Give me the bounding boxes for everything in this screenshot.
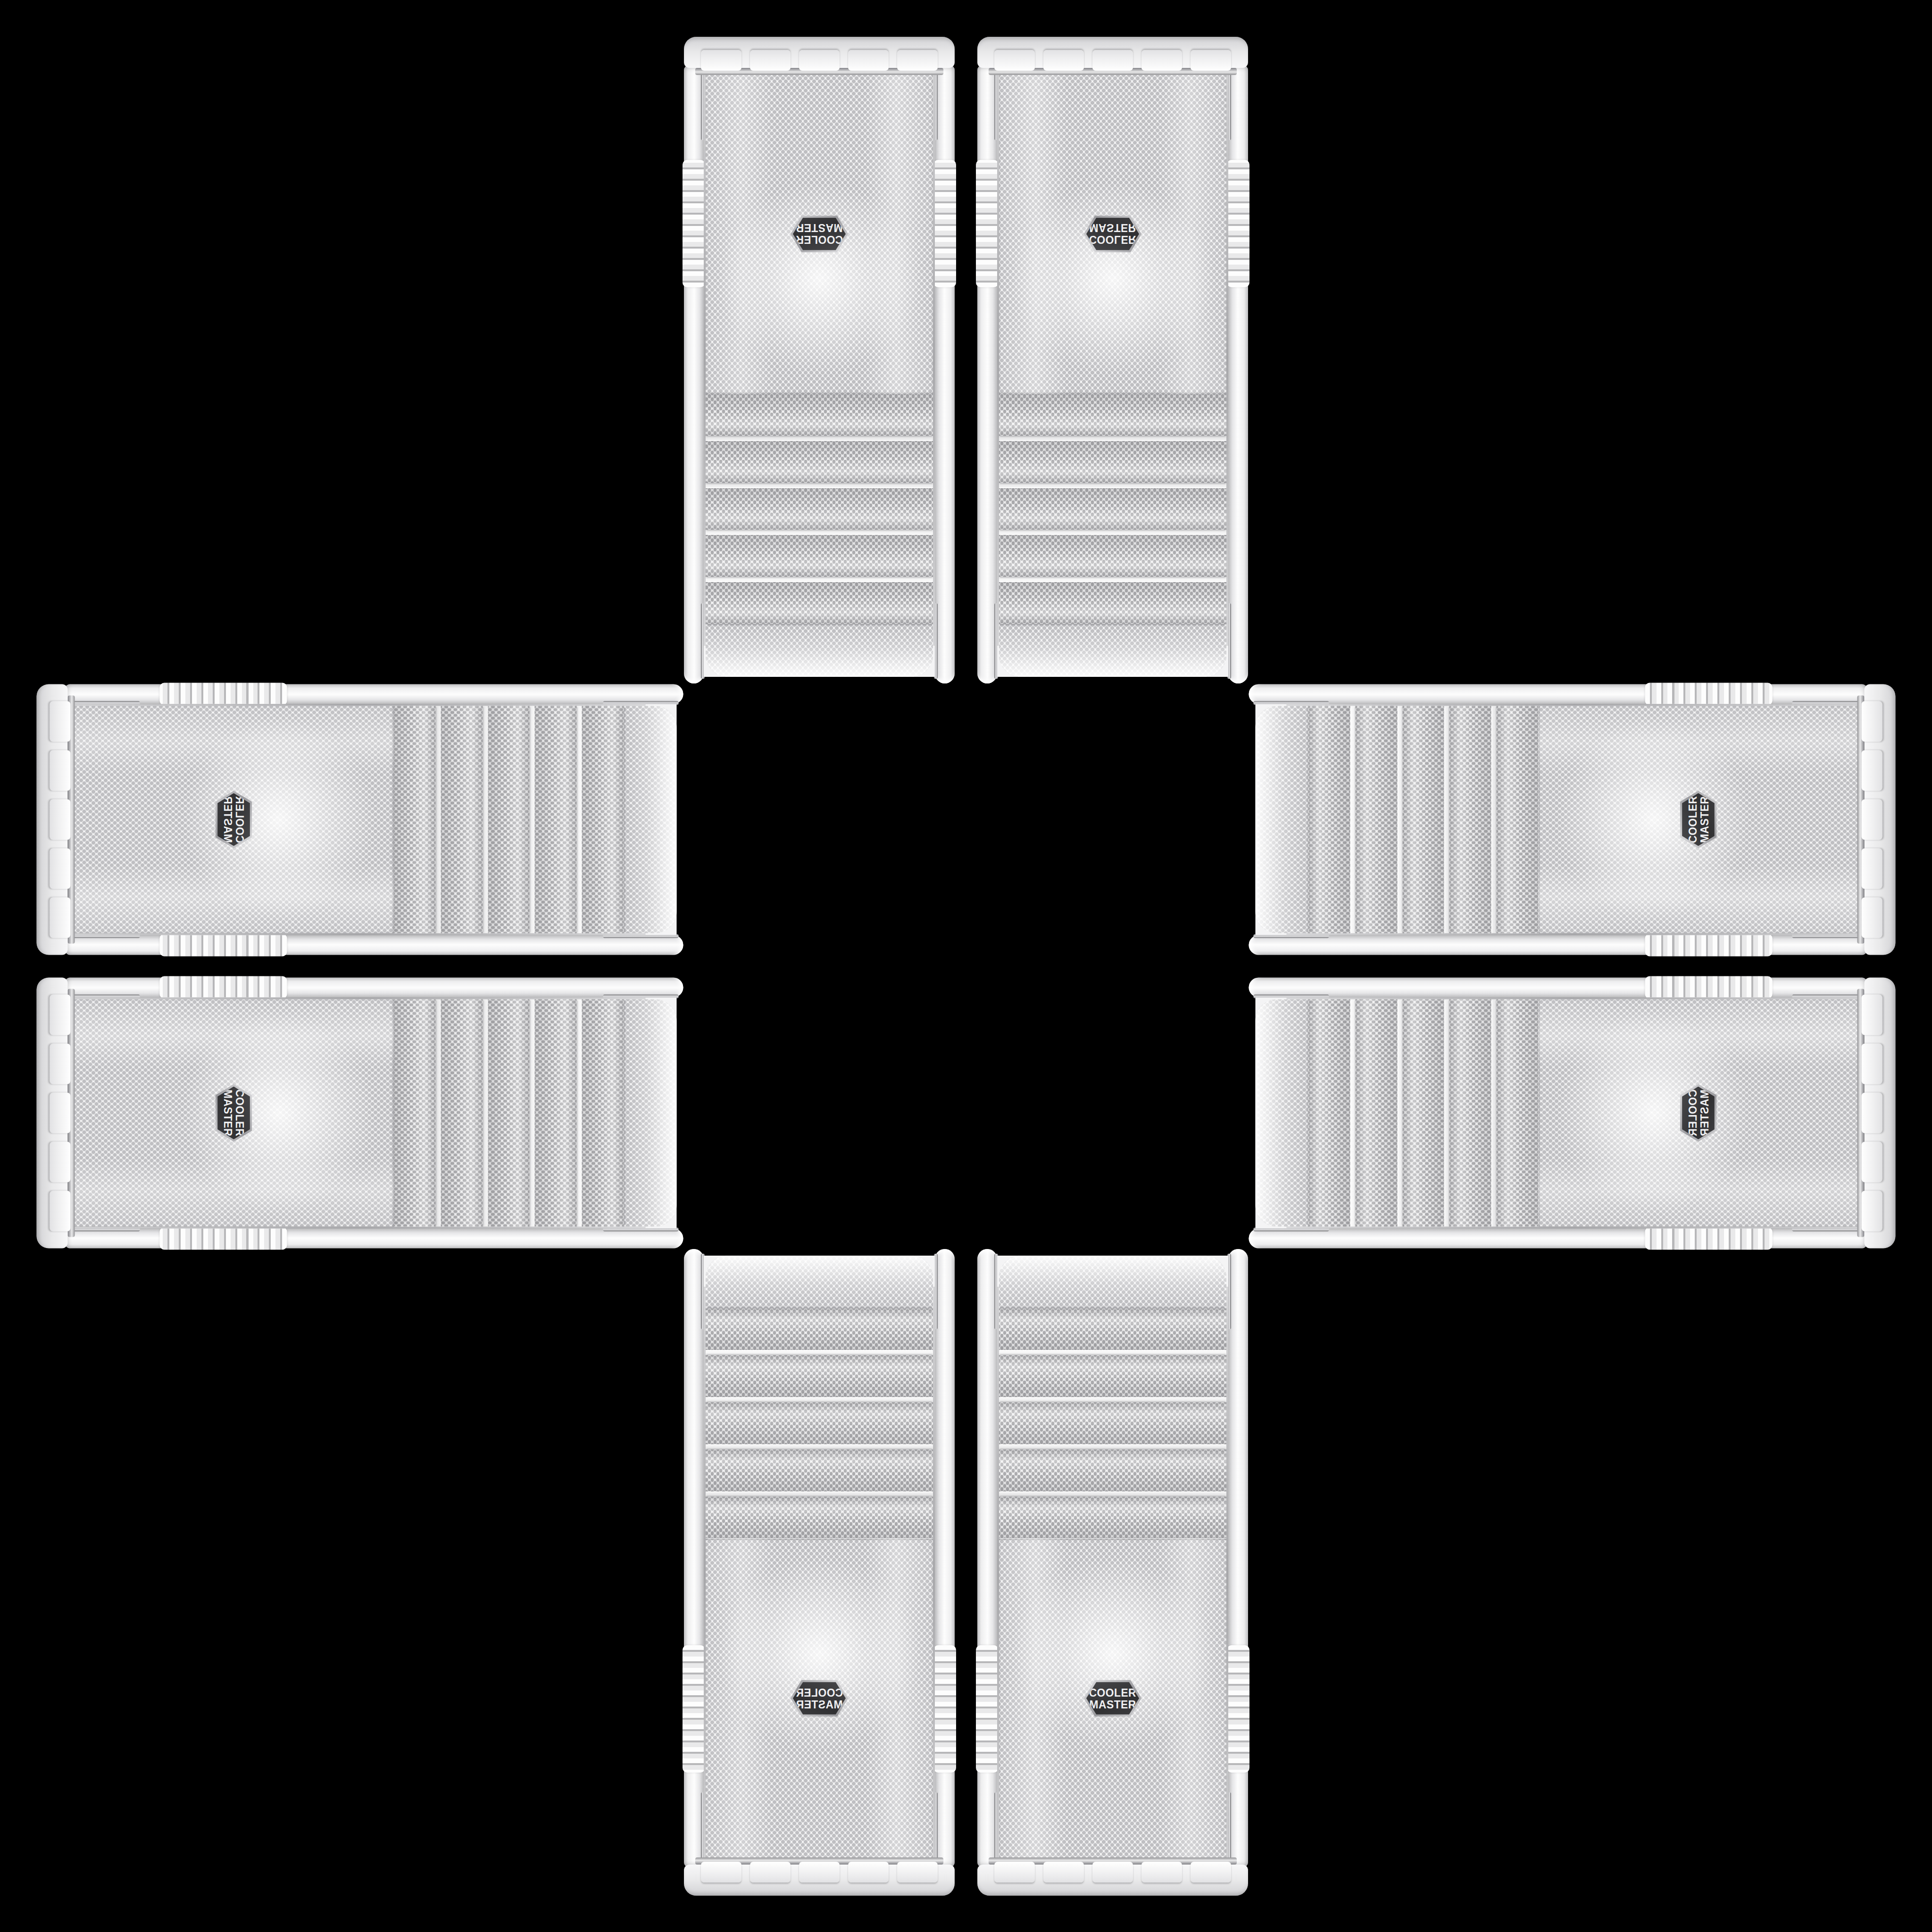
side-rail-right [1228, 1249, 1248, 1867]
badge-text-line1: COOLER [1687, 796, 1699, 843]
bottom-cap [1865, 977, 1896, 1248]
rail-grip-ribs [1645, 933, 1773, 956]
badge-face: COOLER MASTER [1086, 216, 1139, 252]
badge-face: COOLER MASTER [216, 1086, 252, 1139]
cap-segment [994, 50, 1035, 71]
drive-bay-group [394, 706, 624, 933]
cap-segment [1092, 1862, 1133, 1882]
drive-bay-group [394, 999, 624, 1226]
rail-grip-ribs [933, 1645, 956, 1773]
side-rail-left [1249, 977, 1867, 997]
rail-grip-ribs [160, 683, 287, 705]
bay-shading [999, 488, 1226, 530]
mesh-shoulder [1256, 999, 1308, 1226]
case-top-left-vertical: COOLER MASTER [684, 37, 955, 686]
mesh-panel: COOLER MASTER [74, 706, 394, 933]
badge-text-line1: COOLER [234, 796, 246, 843]
drive-bay-cover [706, 1308, 933, 1350]
cap-segment [50, 994, 71, 1035]
drive-bay-cover [488, 999, 530, 1226]
bay-shading [582, 706, 624, 933]
mesh-shoulder [999, 1256, 1226, 1308]
front-panel: COOLER MASTER [704, 1256, 935, 1858]
bay-shading [1497, 999, 1539, 1226]
rail-grip-ribs [1227, 1645, 1249, 1773]
side-rail-right [1249, 1228, 1867, 1248]
drive-bay-cover [1402, 999, 1444, 1226]
drive-bay-cover [706, 1497, 933, 1539]
bay-shading [1308, 999, 1350, 1226]
rail-grip-ribs [160, 933, 287, 956]
cap-segment [1862, 701, 1882, 741]
side-rail-left [977, 1249, 997, 1867]
badge-text-line1: COOLER [1089, 234, 1136, 246]
bay-shading [1497, 706, 1539, 933]
drive-bay-cover [582, 706, 624, 933]
bay-shading [999, 1402, 1226, 1444]
bottom-cap [977, 1865, 1248, 1896]
bay-shading [1355, 999, 1397, 1226]
rail-grip-ribs [933, 160, 956, 287]
cap-segment [750, 50, 791, 71]
bay-shading [582, 999, 624, 1226]
cap-segment-row [701, 1862, 938, 1882]
rail-grip-ribs [1645, 976, 1773, 999]
bay-shading [535, 706, 577, 933]
badge-text-line2: MASTER [222, 796, 234, 842]
badge-text-line1: COOLER [796, 234, 843, 246]
bay-shading [1308, 706, 1350, 933]
mesh-shoulder [1256, 706, 1308, 933]
drive-bay-cover [535, 706, 577, 933]
badge-face: COOLER MASTER [1680, 1086, 1717, 1139]
bottom-cap [37, 684, 68, 955]
drive-bay-cover [394, 999, 436, 1226]
cap-segment [1862, 848, 1882, 889]
bottom-cap [1865, 684, 1896, 955]
cap-segment [50, 799, 71, 840]
side-rail-right [684, 66, 704, 683]
bay-shading [394, 999, 436, 1226]
badge-face: COOLER MASTER [1680, 793, 1717, 846]
drive-bay-group [1308, 706, 1539, 933]
mesh-panel: COOLER MASTER [706, 74, 933, 394]
badge-text-line2: MASTER [1699, 796, 1710, 842]
cap-segment [1862, 1191, 1882, 1231]
badge-text-line1: COOLER [1089, 1687, 1136, 1699]
bay-shading [706, 394, 933, 436]
drive-bay-cover [441, 999, 483, 1226]
rail-grip-ribs [160, 1227, 287, 1249]
cap-segment [50, 701, 71, 741]
cap-segment [1141, 50, 1182, 71]
highlight-sheen [1256, 999, 1308, 1226]
badge-text-line2: MASTER [222, 1089, 234, 1136]
front-panel: COOLER MASTER [704, 74, 935, 677]
badge-text-line2: MASTER [1089, 1699, 1136, 1710]
bay-shading [706, 441, 933, 483]
bay-shading [706, 1355, 933, 1397]
drive-bay-cover [706, 441, 933, 483]
cap-segment [897, 50, 938, 71]
drive-bay-cover [999, 582, 1226, 624]
rail-grip-ribs [1227, 160, 1249, 287]
drive-bay-cover [1449, 706, 1491, 933]
cap-segment-row [994, 1862, 1231, 1882]
mesh-shoulder [624, 999, 677, 1226]
drive-bay-cover [999, 394, 1226, 436]
drive-bay-group [999, 394, 1226, 624]
drive-bay-cover [999, 1449, 1226, 1491]
highlight-sheen [1256, 706, 1308, 933]
bottom-cap [684, 1865, 955, 1896]
drive-bay-cover [488, 706, 530, 933]
collage-canvas: COOLER MASTER [0, 0, 1932, 1932]
bay-shading [999, 441, 1226, 483]
bay-shading [441, 999, 483, 1226]
case-right-bottom-horizontal: COOLER MASTER [1246, 977, 1896, 1248]
drive-bay-cover [1355, 999, 1397, 1226]
bay-shading [999, 394, 1226, 436]
rail-grip-ribs [683, 160, 705, 287]
bay-shading [999, 1308, 1226, 1350]
bay-shading [706, 1308, 933, 1350]
rail-grip-ribs [976, 160, 999, 287]
mesh-panel: COOLER MASTER [74, 999, 394, 1226]
cap-segment-row [701, 50, 938, 71]
bay-shading [706, 488, 933, 530]
mesh-shoulder [706, 1256, 933, 1308]
cap-segment [799, 1862, 840, 1882]
front-panel: COOLER MASTER [1256, 997, 1858, 1228]
badge-text-line2: MASTER [1089, 222, 1136, 234]
cap-segment-row [994, 50, 1231, 71]
bay-shading [441, 706, 483, 933]
cap-segment [50, 1092, 71, 1133]
side-rail-left [935, 1249, 955, 1867]
front-panel: COOLER MASTER [997, 74, 1228, 677]
mesh-panel: COOLER MASTER [1539, 706, 1858, 933]
drive-bay-cover [999, 441, 1226, 483]
mesh-shoulder [624, 706, 677, 933]
side-rail-right [1249, 684, 1867, 704]
drive-bay-cover [999, 1355, 1226, 1397]
cap-segment [1043, 1862, 1084, 1882]
highlight-sheen [624, 706, 677, 933]
mesh-panel: COOLER MASTER [999, 1539, 1226, 1858]
drive-bay-cover [999, 488, 1226, 530]
drive-bay-cover [706, 1355, 933, 1397]
mesh-panel: COOLER MASTER [999, 74, 1226, 394]
cap-segment [1862, 750, 1882, 791]
side-rail-right [66, 684, 683, 704]
badge-text-line2: MASTER [796, 222, 842, 234]
bay-shading [535, 999, 577, 1226]
drive-bay-cover [1402, 706, 1444, 933]
drive-bay-cover [1449, 999, 1491, 1226]
bay-shading [706, 1449, 933, 1491]
mesh-panel: COOLER MASTER [1539, 999, 1858, 1226]
bay-shading [706, 1402, 933, 1444]
mesh-shoulder [999, 624, 1226, 677]
bay-shading [706, 582, 933, 624]
drive-bay-cover [535, 999, 577, 1226]
drive-bay-cover [1497, 999, 1539, 1226]
bay-shading [706, 535, 933, 577]
badge-text-line1: COOLER [796, 1687, 843, 1699]
highlight-sheen [624, 999, 677, 1226]
bay-shading [999, 1449, 1226, 1491]
side-rail-left [66, 977, 683, 997]
drive-bay-cover [706, 535, 933, 577]
drive-bay-cover [999, 1497, 1226, 1539]
cap-segment [1191, 50, 1231, 71]
cap-segment [1191, 1862, 1231, 1882]
rail-grip-ribs [1645, 683, 1773, 705]
front-panel: COOLER MASTER [74, 704, 677, 935]
rail-grip-ribs [976, 1645, 999, 1773]
drive-bay-cover [706, 1449, 933, 1491]
side-rail-right [1228, 66, 1248, 683]
drive-bay-cover [1308, 706, 1350, 933]
cap-segment [1043, 50, 1084, 71]
cap-segment [799, 50, 840, 71]
cap-segment [897, 1862, 938, 1882]
cap-segment [50, 848, 71, 889]
front-panel: COOLER MASTER [1256, 704, 1858, 935]
highlight-sheen [706, 624, 933, 677]
bay-shading [999, 1355, 1226, 1397]
cap-segment [50, 1191, 71, 1231]
bay-shading [999, 582, 1226, 624]
drive-bay-cover [1497, 706, 1539, 933]
drive-bay-group [999, 1308, 1226, 1539]
side-rail-left [66, 935, 683, 955]
drive-bay-cover [999, 535, 1226, 577]
bay-shading [1449, 999, 1491, 1226]
bay-shading [1449, 706, 1491, 933]
drive-bay-cover [441, 706, 483, 933]
cap-segment-row [50, 994, 71, 1231]
cap-segment [1862, 799, 1882, 840]
case-bottom-left-vertical: COOLER MASTER [684, 1246, 955, 1896]
cap-segment-row [1862, 701, 1882, 938]
drive-bay-cover [582, 999, 624, 1226]
drive-bay-cover [1355, 706, 1397, 933]
bottom-cap [37, 977, 68, 1248]
rail-grip-ribs [1645, 1227, 1773, 1249]
bay-shading [1355, 706, 1397, 933]
bay-shading [394, 706, 436, 933]
bay-shading [1402, 999, 1444, 1226]
drive-bay-group [706, 1308, 933, 1539]
drive-bay-cover [706, 582, 933, 624]
highlight-sheen [999, 624, 1226, 677]
badge-text-line2: MASTER [1699, 1089, 1710, 1136]
bay-shading [488, 706, 530, 933]
badge-face: COOLER MASTER [793, 1680, 846, 1717]
badge-text-line1: COOLER [1687, 1089, 1699, 1136]
drive-bay-cover [706, 1402, 933, 1444]
cap-segment [1092, 50, 1133, 71]
cap-segment [50, 1043, 71, 1084]
cap-segment [1862, 897, 1882, 938]
cap-segment [50, 750, 71, 791]
bay-shading [488, 999, 530, 1226]
case-top-right-vertical: COOLER MASTER [977, 37, 1248, 686]
badge-face: COOLER MASTER [216, 793, 252, 846]
front-panel: COOLER MASTER [74, 997, 677, 1228]
mesh-panel: COOLER MASTER [706, 1539, 933, 1858]
badge-face: COOLER MASTER [1086, 1680, 1139, 1717]
cap-segment [1862, 1092, 1882, 1133]
bottom-cap [684, 37, 955, 68]
cap-segment [1862, 994, 1882, 1035]
rail-grip-ribs [683, 1645, 705, 1773]
cap-segment [848, 1862, 889, 1882]
cap-segment [701, 1862, 741, 1882]
cap-segment [848, 50, 889, 71]
bottom-cap [977, 37, 1248, 68]
cap-segment [1862, 1141, 1882, 1182]
case-bottom-right-vertical: COOLER MASTER [977, 1246, 1248, 1896]
cap-segment [750, 1862, 791, 1882]
drive-bay-cover [1308, 999, 1350, 1226]
cap-segment [50, 1141, 71, 1182]
badge-face: COOLER MASTER [793, 216, 846, 252]
drive-bay-cover [999, 1308, 1226, 1350]
drive-bay-cover [394, 706, 436, 933]
side-rail-right [684, 1249, 704, 1867]
side-rail-left [1249, 935, 1867, 955]
case-right-top-horizontal: COOLER MASTER [1246, 684, 1896, 955]
cap-segment [994, 1862, 1035, 1882]
drive-bay-cover [706, 488, 933, 530]
bay-shading [999, 535, 1226, 577]
bay-shading [706, 1497, 933, 1539]
cap-segment [701, 50, 741, 71]
highlight-sheen [706, 1256, 933, 1308]
badge-text-line2: MASTER [796, 1699, 842, 1710]
bay-shading [999, 1497, 1226, 1539]
mesh-shoulder [706, 624, 933, 677]
case-left-top-horizontal: COOLER MASTER [37, 684, 686, 955]
rail-grip-ribs [160, 976, 287, 999]
badge-text-line1: COOLER [234, 1089, 246, 1136]
cap-segment [1141, 1862, 1182, 1882]
drive-bay-cover [706, 394, 933, 436]
cap-segment-row [1862, 994, 1882, 1231]
drive-bay-group [706, 394, 933, 624]
cap-segment [1862, 1043, 1882, 1084]
side-rail-left [935, 66, 955, 683]
highlight-sheen [999, 1256, 1226, 1308]
drive-bay-cover [999, 1402, 1226, 1444]
drive-bay-group [1308, 999, 1539, 1226]
front-panel: COOLER MASTER [997, 1256, 1228, 1858]
side-rail-right [66, 1228, 683, 1248]
cap-segment [50, 897, 71, 938]
bay-shading [1402, 706, 1444, 933]
cap-segment-row [50, 701, 71, 938]
case-left-bottom-horizontal: COOLER MASTER [37, 977, 686, 1248]
side-rail-left [977, 66, 997, 683]
